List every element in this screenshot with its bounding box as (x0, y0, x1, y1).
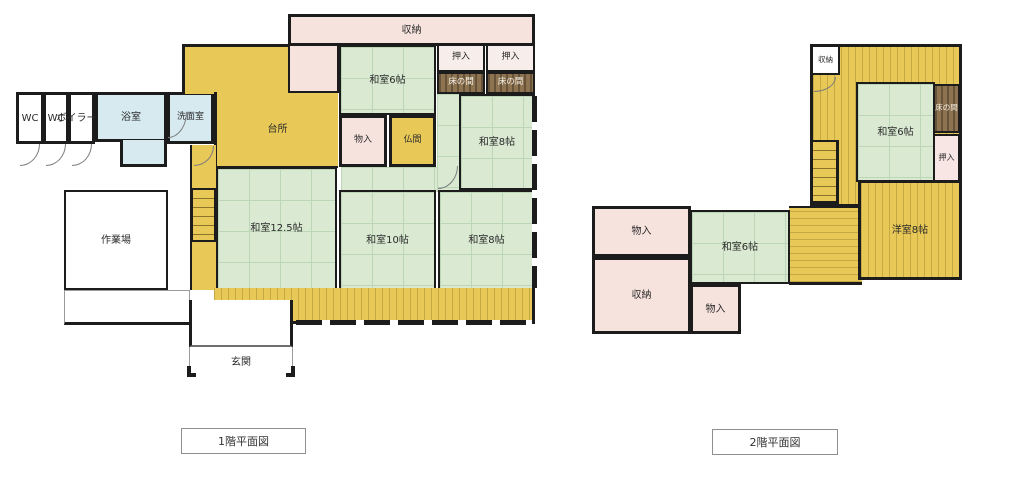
staircase-2f (813, 140, 839, 204)
room-yoshitsu8: 洋室8帖 (858, 180, 962, 280)
room-genkan: 玄関 (189, 347, 293, 377)
room-boiler: ボイラー室 (69, 92, 95, 144)
door-arc-boiler (72, 144, 92, 166)
room-bath-lower (120, 140, 167, 167)
room-washitsu6-2f-bottom: 和室6帖 (690, 210, 790, 284)
room-bath: 浴室 (95, 92, 167, 142)
room-butsuma: 仏間 (389, 115, 436, 167)
door-arc-wc2 (46, 144, 66, 166)
floorplan-canvas: WC WC ボイラー室 浴室 洗面室 台所 収納 和室6帖 押入 押入 床の間 … (0, 0, 1024, 486)
room-monoire-2f-upper: 物入 (592, 206, 691, 257)
corridor-2f (789, 206, 862, 285)
room-tokonoma-1: 床の間 (437, 72, 485, 94)
room-monoire-1f: 物入 (339, 115, 387, 167)
genkan-step-bracket-right (286, 366, 295, 377)
room-washitsu8-top: 和室8帖 (459, 94, 535, 190)
door-arc-wc1 (20, 144, 40, 166)
room-wc-1: WC (16, 92, 44, 144)
room-oshiire-2f: 押入 (933, 134, 960, 182)
porch-west (64, 290, 190, 325)
room-workshop: 作業場 (64, 190, 168, 290)
caption-floor1: 1階平面図 (181, 428, 306, 454)
room-washitsu10: 和室10帖 (339, 190, 436, 290)
room-storage-2f: 収納 (592, 257, 691, 334)
room-storage-2f-top: 収納 (813, 47, 840, 75)
room-washitsu125: 和室12.5帖 (216, 167, 337, 290)
room-storage-1f-wing (288, 46, 339, 93)
room-washitsu8-bottom: 和室8帖 (438, 190, 535, 290)
room-washitsu6-1f: 和室6帖 (339, 45, 436, 115)
room-tokonoma-2: 床の間 (486, 72, 535, 94)
hallway-horizontal (341, 167, 437, 192)
room-monoire-2f-lower: 物入 (690, 284, 741, 334)
room-kitchen: 台所 (214, 92, 338, 168)
room-kitchen-upper (182, 44, 289, 94)
genkan-step-bracket-left (187, 366, 196, 377)
room-oshiire-1: 押入 (437, 44, 485, 72)
room-oshiire-2: 押入 (486, 44, 535, 72)
caption-floor2: 2階平面図 (712, 429, 838, 455)
room-tokonoma-2f: 床の間 (933, 84, 960, 133)
window-wall-bottom (296, 320, 532, 325)
window-wall-right (532, 96, 537, 288)
room-washitsu6-2f-top: 和室6帖 (856, 82, 935, 182)
staircase-1f (191, 188, 216, 242)
room-storage-1f: 収納 (288, 14, 535, 46)
genkan-hall (189, 300, 293, 347)
